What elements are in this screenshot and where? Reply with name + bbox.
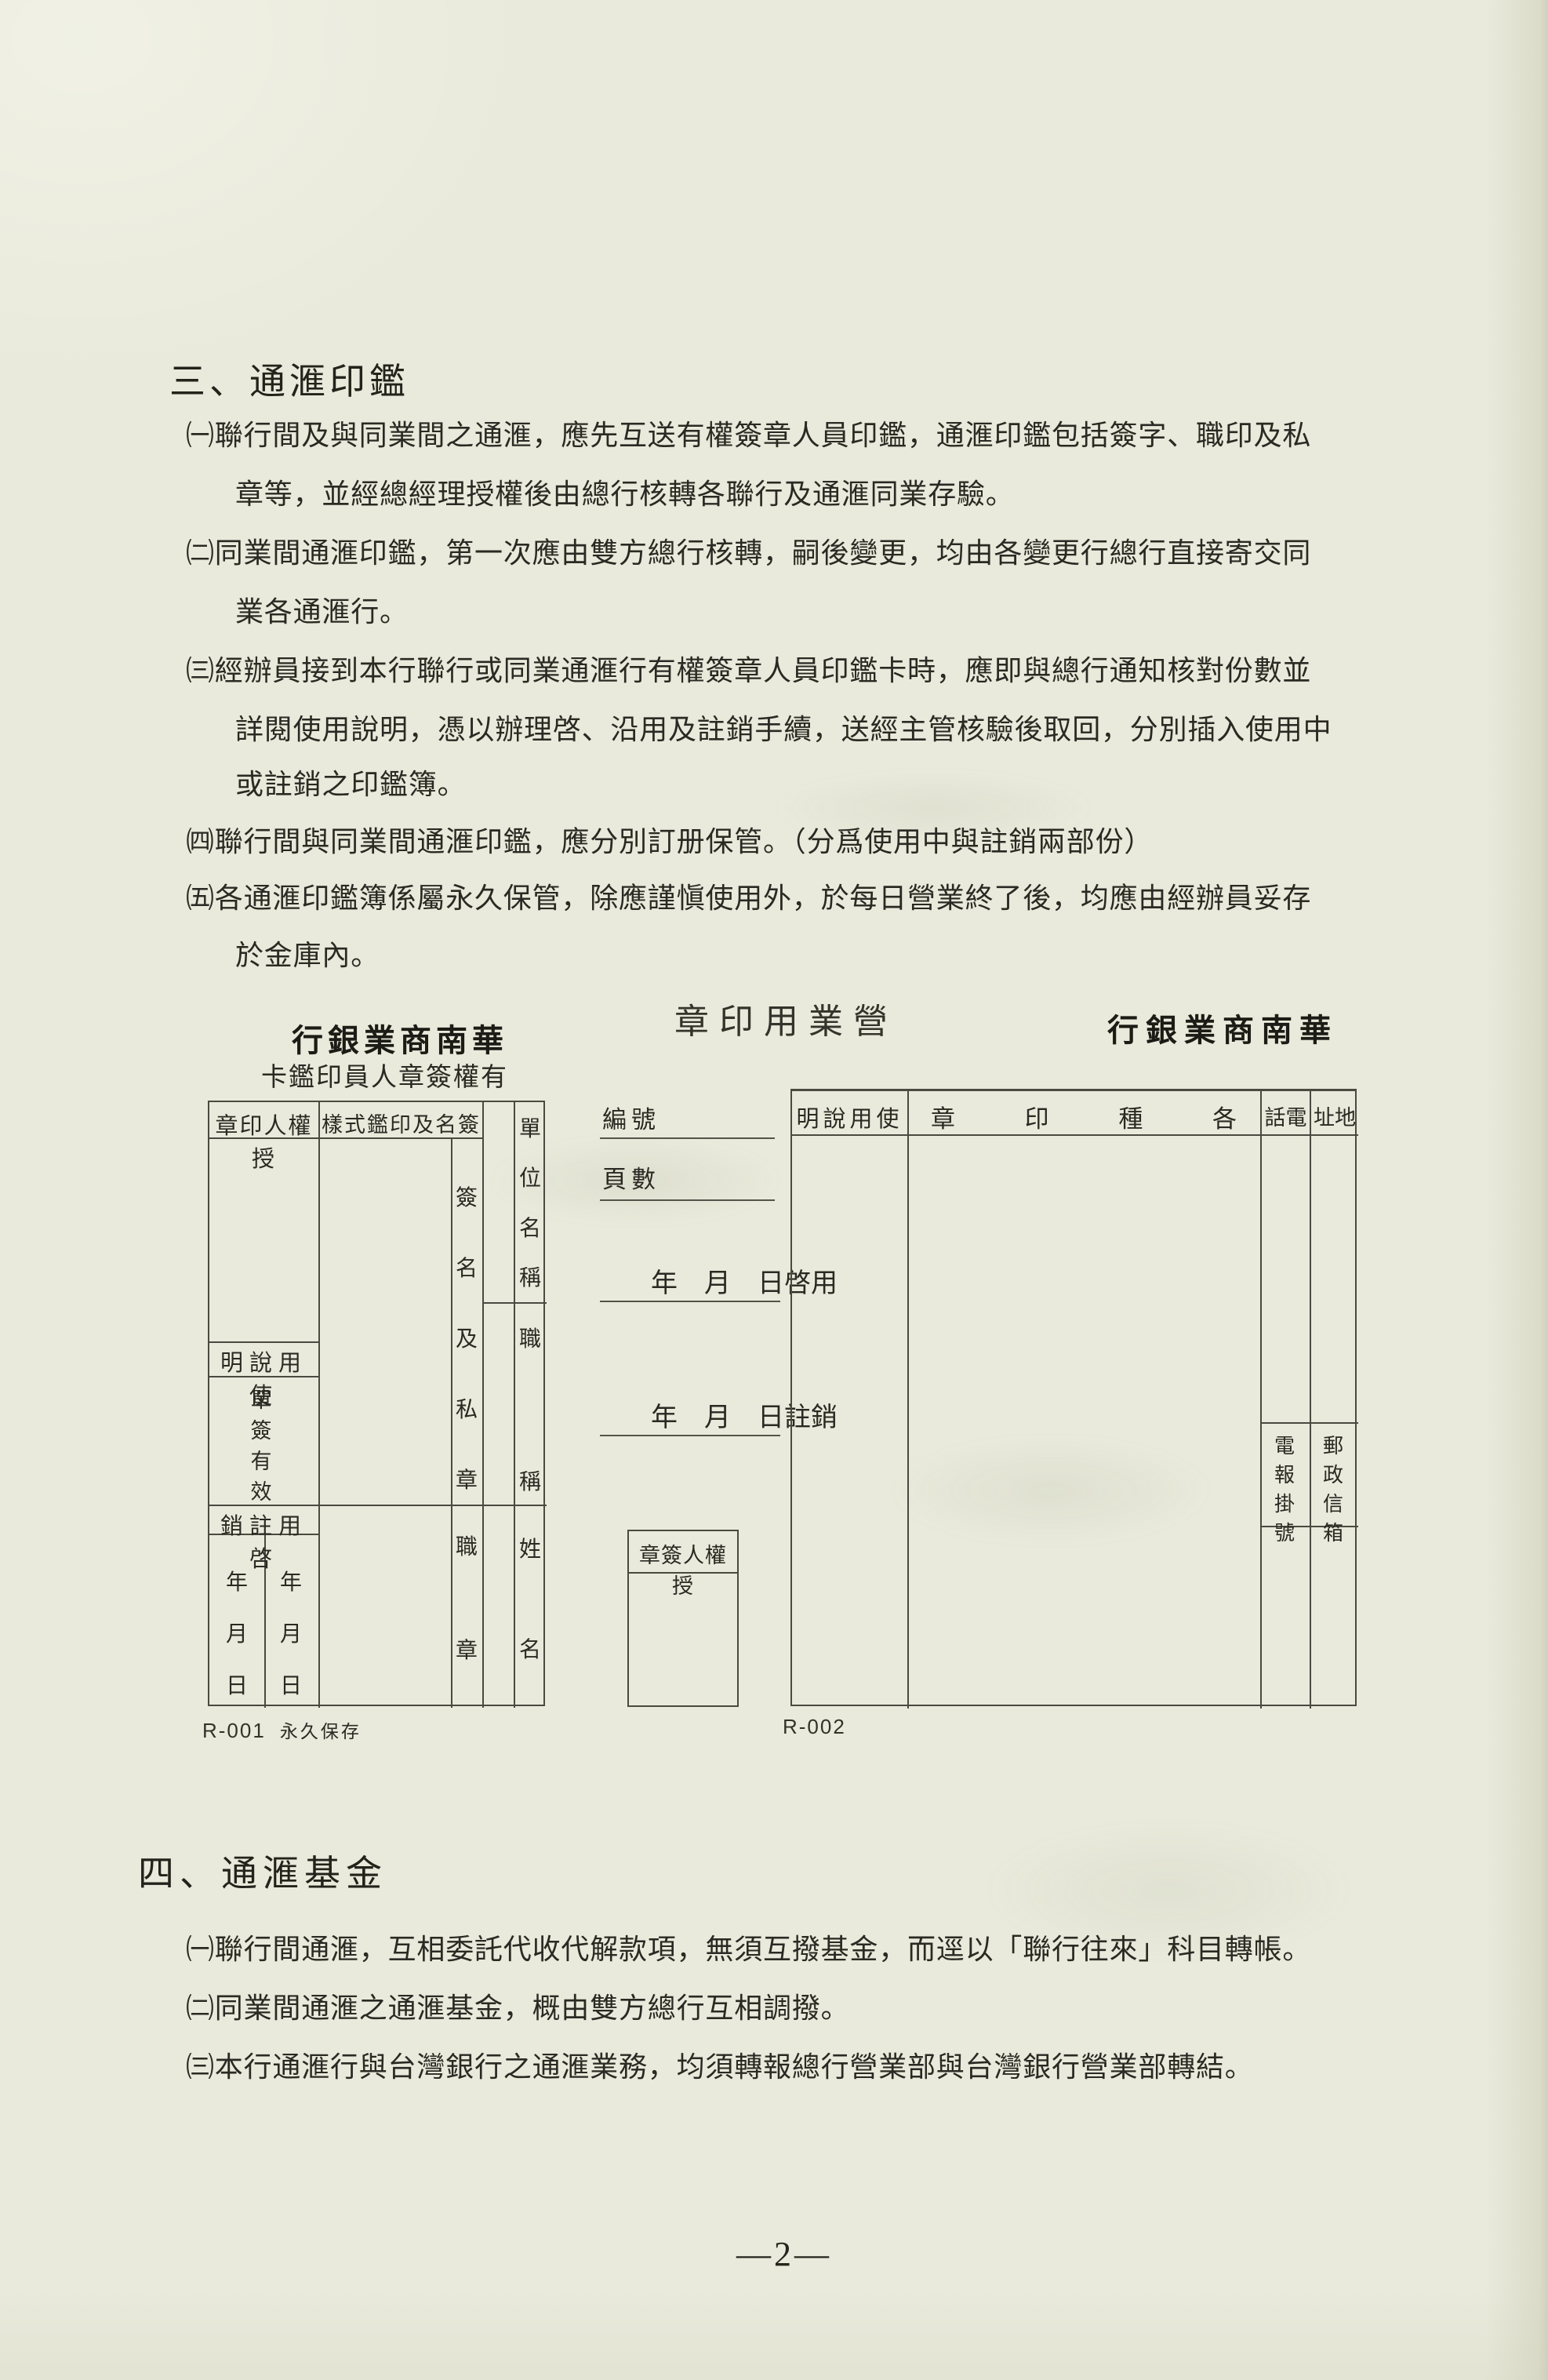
signature-private-seal-label: 簽名及私章 xyxy=(449,1181,484,1494)
serial-number-label: 編號 xyxy=(602,1100,660,1135)
authorizer-signature-box: 章簽人權授 xyxy=(627,1530,739,1707)
date-column-year-month-day: 年月日 xyxy=(220,1565,254,1700)
section3-line: ㈠聯行間及與同業間之通滙，應先互送有權簽章人員印鑑，通滙印鑑包括簽字、職印及私 xyxy=(186,418,1311,453)
page-count-line xyxy=(600,1199,775,1201)
section3-line: 章等，並經總經理授權後由總行核轉各聯行及通滙同業存驗。 xyxy=(235,477,1015,511)
section4-line: ㈠聯行間通滙，互相委託代收代解款項，無須互撥基金，而逕以「聯行往來」科目轉帳。 xyxy=(186,1932,1311,1967)
right-form-bank-name: 行銀業商南華 xyxy=(1107,1005,1338,1050)
section3-line: 詳閱使用說明，憑以辦理啓、沿用及註銷手續，送經主管核驗後取回，分別插入使用中 xyxy=(235,712,1332,747)
section3-line: ㈤各通滙印鑑簿係屬永久保管，除應謹愼使用外，於每日營業終了後，均應由經辦員妥存 xyxy=(186,881,1311,915)
section3-line: ㈡同業間通滙印鑑，第一次應由雙方總行核轉，嗣後變更，均由各變更行總行直接寄交同 xyxy=(186,536,1311,570)
paper-edge-shadow xyxy=(1485,0,1548,2380)
forms-caption: 章印用業營 xyxy=(674,993,898,1043)
section3-line: ㈢經辦員接到本行聯行或同業通滙行有權簽章人員印鑑卡時，應即與總行通知核對份數並 xyxy=(186,653,1311,688)
table-rule xyxy=(907,1091,909,1709)
paper-highlight xyxy=(0,0,549,392)
seal-register-table: 明說用使 章印種各 話電 址地 電報掛號 郵政信箱 xyxy=(790,1089,1357,1706)
activation-date-rule xyxy=(600,1301,780,1302)
section4-heading: 四、通滙基金 xyxy=(138,1845,387,1897)
table-rule xyxy=(482,1302,547,1304)
right-table-address-header: 址地 xyxy=(1311,1101,1358,1131)
left-form-bank-name: 行銀業商南華 xyxy=(292,1015,508,1061)
person-name-label: 姓名 xyxy=(513,1532,547,1664)
section4-line: ㈡同業間通滙之通滙基金，概由雙方總行互相調撥。 xyxy=(186,1991,849,2025)
signature-card-table: 章印人權授 樣式鑑印及名簽 明說用使 單簽有效 銷註用啓 年月日 年月日 簽名及… xyxy=(208,1101,545,1706)
activate-cancel-header: 銷註用啓 xyxy=(209,1508,318,1574)
section3-line: 或註銷之印鑑簿。 xyxy=(235,767,466,802)
unit-name-label: 單位名稱 xyxy=(513,1112,547,1292)
authorizer-box-header: 章簽人權授 xyxy=(629,1538,737,1599)
table-rule xyxy=(629,1572,737,1574)
right-table-seals-header: 章印種各 xyxy=(931,1099,1237,1134)
left-table-col1-header: 章印人權授 xyxy=(209,1108,318,1174)
po-box-label: 郵政信箱 xyxy=(1317,1430,1350,1518)
table-rule xyxy=(209,1341,318,1343)
left-form-number: R-001 xyxy=(202,1719,266,1742)
section3-line: ㈣聯行間與同業間通滙印鑑，應分別訂册保管。（分爲使用中與註銷兩部份） xyxy=(186,824,1153,859)
right-table-phone-header: 話電 xyxy=(1262,1101,1310,1131)
table-rule xyxy=(1310,1091,1311,1709)
page-count-label: 頁數 xyxy=(602,1159,660,1195)
table-rule xyxy=(318,1102,320,1708)
left-table-col2-header: 樣式鑑印及名簽 xyxy=(320,1108,482,1138)
paper-bottom-shadow xyxy=(0,2286,1548,2380)
section3-line: 於金庫內。 xyxy=(235,938,380,973)
duty-seal-label: 職章 xyxy=(449,1530,484,1665)
table-rule xyxy=(1260,1422,1358,1424)
job-title-label: 職稱 xyxy=(513,1322,547,1496)
section4-line: ㈢本行通滙行與台灣銀行之通滙業務，均須轉報總行營業部與台灣銀行營業部轉結。 xyxy=(186,2050,1254,2084)
scanned-document-page: 三、通滙印鑑 ㈠聯行間及與同業間之通滙，應先互送有權簽章人員印鑑，通滙印鑑包括簽… xyxy=(0,0,1548,2380)
telegraph-code-label: 電報掛號 xyxy=(1268,1430,1301,1518)
retention-note: 永久保存 xyxy=(280,1722,362,1741)
serial-number-line xyxy=(600,1137,775,1139)
left-form-card-title: 卡鑑印員人章簽權有 xyxy=(261,1056,508,1094)
section3-heading: 三、通滙印鑑 xyxy=(169,353,409,405)
single-signature-valid-label: 單簽有效 xyxy=(242,1383,280,1471)
left-form-footer: R-001 永久保存 xyxy=(202,1716,362,1743)
table-rule xyxy=(792,1134,1358,1136)
right-table-usage-header: 明說用使 xyxy=(792,1101,907,1134)
table-rule xyxy=(1260,1091,1262,1709)
middle-form-number: R-002 xyxy=(783,1715,846,1739)
section3-line: 業各通滙行。 xyxy=(235,595,409,629)
date-column-year-month-day: 年月日 xyxy=(274,1565,308,1700)
cancellation-date-rule xyxy=(600,1435,780,1436)
page-number: —2— xyxy=(721,2234,847,2274)
